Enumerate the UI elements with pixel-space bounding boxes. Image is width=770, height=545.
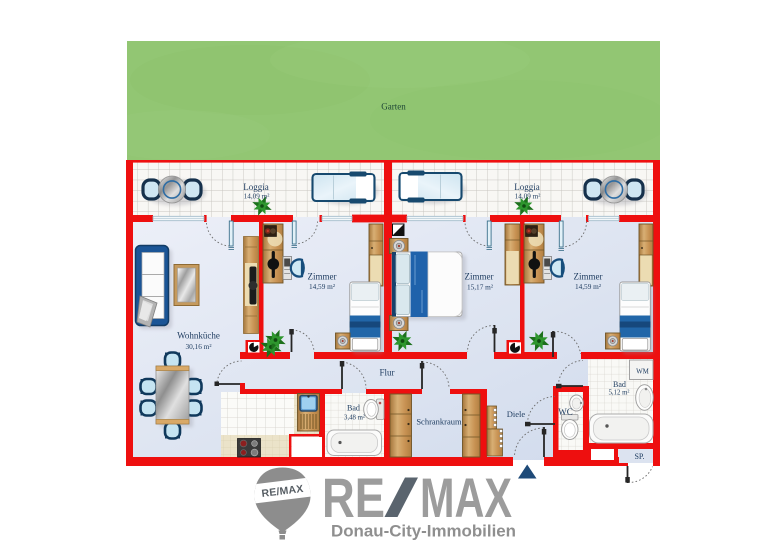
svg-text:5,12 m²: 5,12 m² (609, 390, 630, 397)
svg-text:Wohnküche: Wohnküche (177, 331, 220, 341)
svg-text:Loggia: Loggia (243, 182, 269, 192)
svg-text:30,16 m²: 30,16 m² (185, 342, 212, 351)
svg-text:MAX: MAX (420, 466, 512, 529)
svg-text:15,17 m²: 15,17 m² (467, 283, 494, 292)
svg-text:14,09 m²: 14,09 m² (515, 193, 541, 201)
svg-text:Bad: Bad (347, 404, 360, 413)
svg-text:WM: WM (636, 368, 650, 376)
svg-text:Zimmer: Zimmer (574, 272, 603, 282)
svg-text:Zimmer: Zimmer (465, 272, 494, 282)
svg-text:SP.: SP. (634, 452, 644, 461)
svg-text:Donau-City-Immobilien: Donau-City-Immobilien (331, 522, 516, 541)
svg-text:WC: WC (558, 407, 573, 417)
svg-text:Zimmer: Zimmer (308, 272, 337, 282)
svg-text:Schrankraum: Schrankraum (416, 417, 462, 427)
svg-text:14,59 m²: 14,59 m² (575, 282, 602, 291)
svg-text:Loggia: Loggia (514, 182, 540, 192)
svg-text:Diele: Diele (507, 409, 526, 419)
svg-text:Flur: Flur (379, 368, 394, 378)
svg-text:14,59 m²: 14,59 m² (309, 282, 336, 291)
svg-text:3,48 m²: 3,48 m² (344, 415, 365, 422)
svg-text:14,09 m²: 14,09 m² (244, 193, 270, 201)
svg-text:Bad: Bad (613, 380, 626, 389)
svg-text:Garten: Garten (381, 102, 406, 112)
svg-text:RE: RE (322, 466, 385, 529)
